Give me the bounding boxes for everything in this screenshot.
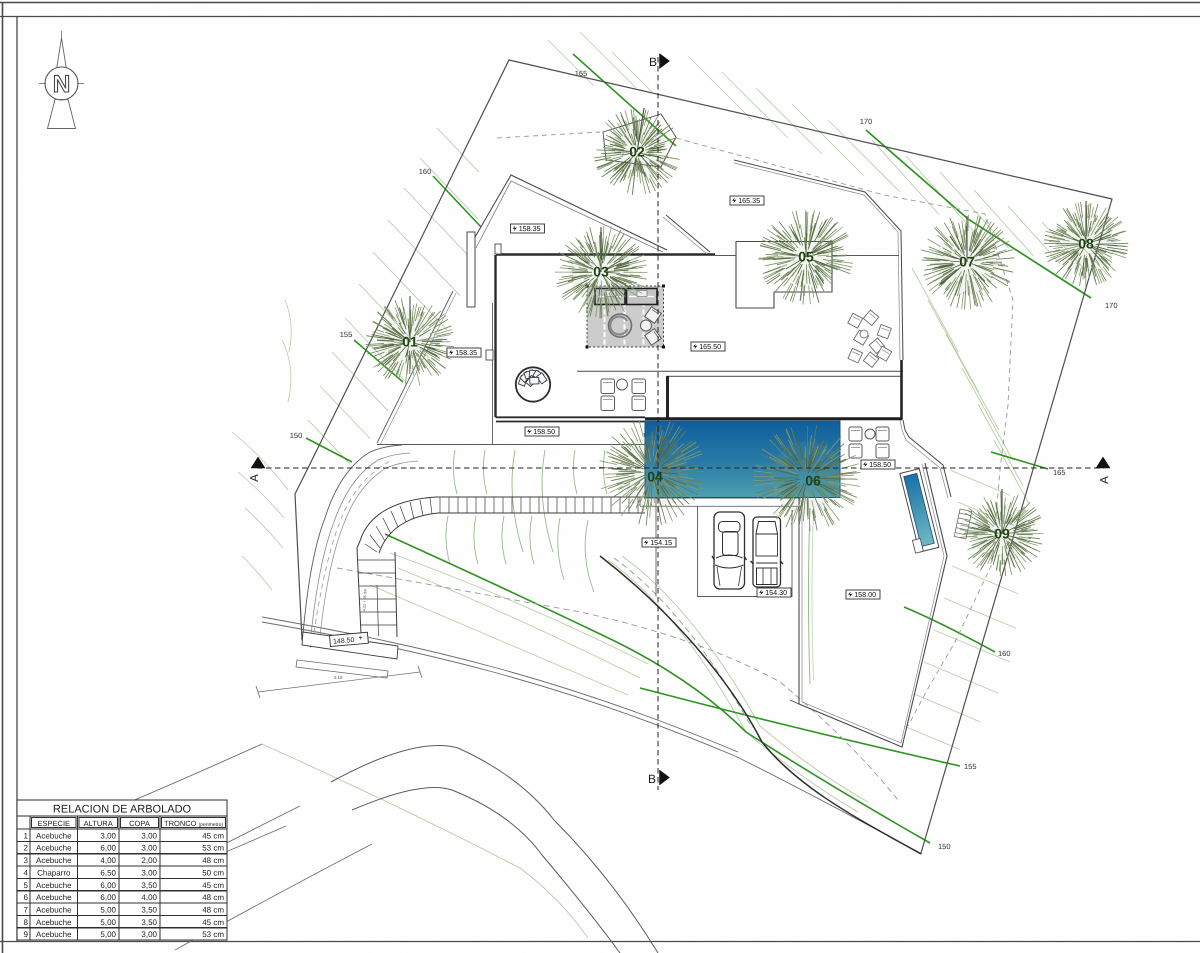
svg-text:158.00: 158.00 — [854, 590, 876, 599]
svg-text:Acebuche: Acebuche — [36, 906, 72, 915]
svg-text:8: 8 — [24, 918, 29, 927]
svg-text:170: 170 — [860, 117, 873, 126]
svg-text:A: A — [1099, 476, 1111, 484]
svg-text:Chaparro: Chaparro — [37, 868, 71, 877]
svg-text:9: 9 — [24, 930, 29, 939]
svg-text:COPA: COPA — [129, 819, 150, 828]
svg-text:165: 165 — [1053, 468, 1066, 477]
svg-text:3: 3 — [24, 856, 29, 865]
svg-text:04: 04 — [647, 469, 663, 485]
svg-text:48 cm: 48 cm — [202, 906, 224, 915]
svg-text:6,00: 6,00 — [100, 881, 116, 890]
svg-text:1: 1 — [24, 831, 29, 840]
svg-text:154.15: 154.15 — [650, 538, 672, 547]
svg-text:Acebuche: Acebuche — [36, 918, 72, 927]
svg-text:150: 150 — [938, 842, 951, 851]
svg-text:53 cm: 53 cm — [202, 844, 224, 853]
svg-text:7: 7 — [24, 906, 29, 915]
svg-text:3,50: 3,50 — [141, 881, 157, 890]
svg-text:165.35: 165.35 — [738, 196, 760, 205]
svg-text:A: A — [249, 474, 261, 482]
svg-text:3,00: 3,00 — [141, 930, 157, 939]
svg-text:3,00: 3,00 — [100, 831, 116, 840]
svg-text:4.19: 4.19 — [334, 675, 343, 680]
svg-text:6,00: 6,00 — [100, 893, 116, 902]
svg-text:N: N — [53, 71, 70, 98]
svg-text:3,50: 3,50 — [141, 918, 157, 927]
svg-text:53 cm: 53 cm — [202, 930, 224, 939]
svg-text:09: 09 — [994, 526, 1010, 542]
svg-text:170: 170 — [1105, 301, 1118, 310]
svg-text:Acebuche: Acebuche — [36, 881, 72, 890]
svg-text:160: 160 — [998, 649, 1011, 658]
svg-text:07: 07 — [959, 254, 975, 270]
svg-text:5,00: 5,00 — [100, 930, 116, 939]
svg-text:158.35: 158.35 — [455, 348, 477, 357]
svg-text:ALTURA: ALTURA — [84, 819, 113, 828]
svg-text:6: 6 — [24, 893, 29, 902]
svg-text:4: 4 — [24, 868, 29, 877]
svg-text:RELACION DE ARBOLADO: RELACION DE ARBOLADO — [53, 804, 192, 816]
svg-text:155: 155 — [964, 762, 977, 771]
svg-text:45 cm: 45 cm — [202, 881, 224, 890]
svg-text:2,00: 2,00 — [141, 856, 157, 865]
svg-text:48 cm: 48 cm — [202, 893, 224, 902]
svg-text:5,00: 5,00 — [100, 918, 116, 927]
svg-text:50 cm: 50 cm — [202, 868, 224, 877]
svg-text:48 cm: 48 cm — [202, 856, 224, 865]
svg-text:Acebuche: Acebuche — [36, 893, 72, 902]
svg-text:155: 155 — [340, 330, 353, 339]
svg-text:158.50: 158.50 — [533, 427, 555, 436]
svg-text:3,50: 3,50 — [141, 906, 157, 915]
svg-text:158.50: 158.50 — [869, 460, 891, 469]
svg-text:3,00: 3,00 — [141, 844, 157, 853]
svg-text:ESPECIE: ESPECIE — [38, 819, 71, 828]
svg-text:6,50: 6,50 — [100, 868, 116, 877]
svg-text:Acebuche: Acebuche — [36, 856, 72, 865]
svg-text:45 cm: 45 cm — [202, 831, 224, 840]
svg-text:Acebuche: Acebuche — [36, 930, 72, 939]
svg-text:158.35: 158.35 — [519, 224, 541, 233]
svg-text:160: 160 — [419, 167, 432, 176]
svg-text:3,00: 3,00 — [141, 868, 157, 877]
svg-text:B: B — [649, 55, 657, 69]
svg-text:5,00: 5,00 — [100, 906, 116, 915]
svg-text:154.30: 154.30 — [765, 588, 787, 597]
svg-text:3,00: 3,00 — [141, 831, 157, 840]
svg-text:01: 01 — [402, 334, 418, 350]
svg-text:Acebuche: Acebuche — [36, 831, 72, 840]
svg-text:2: 2 — [24, 844, 29, 853]
svg-text:45 cm: 45 cm — [202, 918, 224, 927]
svg-text:08: 08 — [1078, 236, 1094, 252]
svg-text:03: 03 — [593, 264, 609, 280]
svg-text:165.50: 165.50 — [699, 342, 721, 351]
svg-text:4,00: 4,00 — [141, 893, 157, 902]
svg-text:5: 5 — [24, 881, 29, 890]
svg-text:Acebuche: Acebuche — [36, 844, 72, 853]
svg-text:B: B — [648, 772, 656, 786]
svg-text:6,00: 6,00 — [100, 844, 116, 853]
svg-text:05: 05 — [798, 249, 814, 265]
svg-text:06: 06 — [805, 473, 821, 489]
svg-text:4,00: 4,00 — [100, 856, 116, 865]
svg-text:02: 02 — [629, 144, 645, 160]
svg-text:150: 150 — [290, 431, 303, 440]
